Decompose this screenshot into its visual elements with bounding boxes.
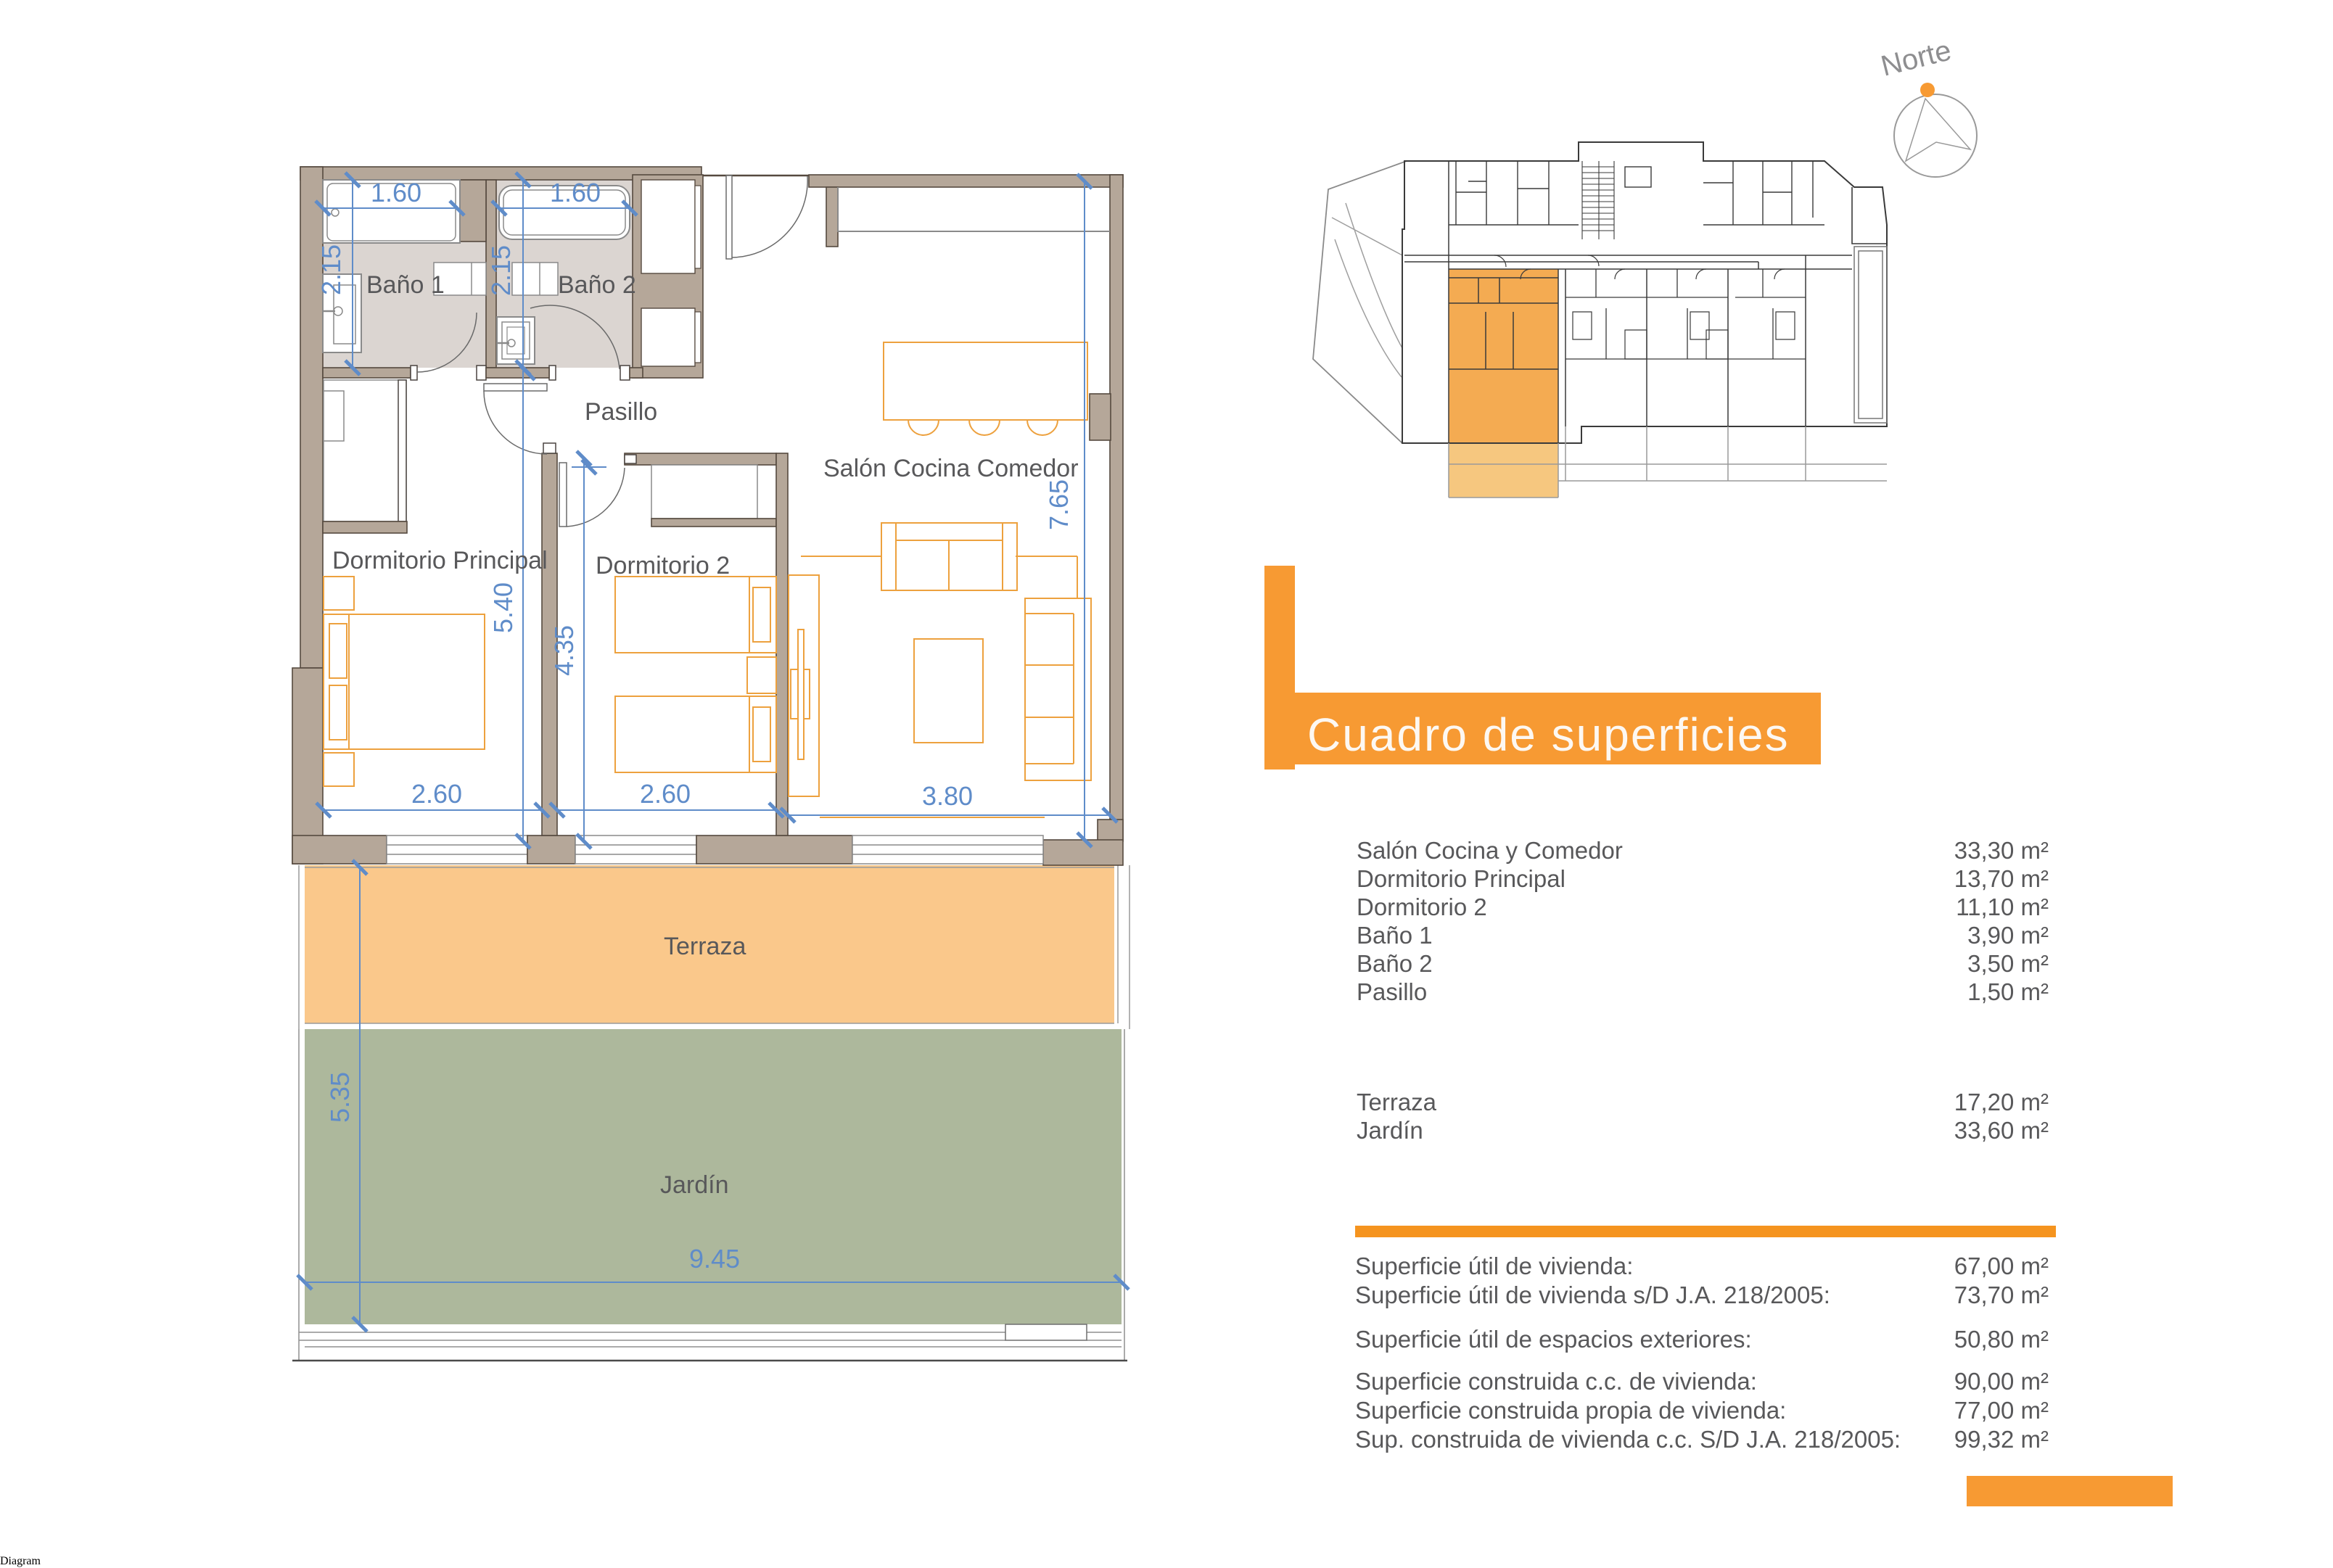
svg-text:Cuadro de superficies: Cuadro de superficies [1307,709,1790,761]
svg-text:Superficie útil de espacios ex: Superficie útil de espacios exteriores: [1355,1326,1752,1353]
svg-text:Dormitorio Principal: Dormitorio Principal [332,547,548,574]
svg-text:90,00 m²: 90,00 m² [1954,1368,2049,1395]
svg-text:Sup. construida de vivienda c.: Sup. construida de vivienda c.c. S/D J.A… [1355,1426,1901,1453]
svg-text:Superficie construida propia d: Superficie construida propia de vivienda… [1355,1397,1786,1424]
svg-text:7.65: 7.65 [1044,479,1074,530]
svg-text:Superficie útil de vivienda s/: Superficie útil de vivienda s/D J.A. 218… [1355,1282,1830,1308]
svg-text:Dormitorio 2: Dormitorio 2 [1357,894,1487,920]
svg-text:2.15: 2.15 [316,244,346,295]
svg-text:5.35: 5.35 [325,1072,355,1123]
svg-text:Dormitorio Principal: Dormitorio Principal [1357,865,1565,892]
svg-text:2.60: 2.60 [640,779,691,809]
svg-text:33,30 m²: 33,30 m² [1954,837,2049,864]
svg-text:Baño 2: Baño 2 [1357,950,1433,977]
svg-text:Salón Cocina y Comedor: Salón Cocina y Comedor [1357,837,1623,864]
svg-text:3.80: 3.80 [922,781,973,811]
svg-text:33,60 m²: 33,60 m² [1954,1117,2049,1144]
svg-text:4.35: 4.35 [549,625,579,676]
svg-text:Baño 1: Baño 1 [366,271,445,299]
svg-text:17,20 m²: 17,20 m² [1954,1089,2049,1115]
svg-text:11,10 m²: 11,10 m² [1956,894,2049,920]
svg-text:13,70 m²: 13,70 m² [1954,865,2049,892]
svg-text:9.45: 9.45 [689,1244,740,1274]
svg-text:67,00 m²: 67,00 m² [1954,1253,2049,1279]
svg-text:1.60: 1.60 [550,178,601,207]
svg-text:2.15: 2.15 [486,245,516,296]
svg-text:Pasillo: Pasillo [585,398,657,426]
svg-text:77,00 m²: 77,00 m² [1954,1397,2049,1424]
svg-text:1,50 m²: 1,50 m² [1967,978,2049,1005]
svg-text:2.60: 2.60 [411,779,462,809]
svg-text:Jardín: Jardín [660,1171,729,1199]
svg-text:Superficie útil de vivienda:: Superficie útil de vivienda: [1355,1253,1633,1279]
svg-text:3,90 m²: 3,90 m² [1967,922,2049,949]
svg-text:Salón Cocina Comedor: Salón Cocina Comedor [823,455,1079,482]
svg-text:99,32 m²: 99,32 m² [1954,1426,2049,1453]
svg-text:Jardín: Jardín [1357,1117,1423,1144]
svg-text:Baño 2: Baño 2 [558,271,636,299]
svg-text:3,50 m²: 3,50 m² [1967,950,2049,977]
svg-text:Superficie construida c.c. de: Superficie construida c.c. de vivienda: [1355,1368,1757,1395]
svg-text:1.60: 1.60 [371,178,421,207]
svg-text:Terraza: Terraza [664,933,746,960]
svg-text:50,80 m²: 50,80 m² [1954,1326,2049,1353]
svg-text:Pasillo: Pasillo [1357,978,1427,1005]
svg-text:Baño 1: Baño 1 [1357,922,1433,949]
svg-text:Terraza: Terraza [1357,1089,1437,1115]
svg-text:Dormitorio 2: Dormitorio 2 [596,552,730,579]
svg-text:73,70 m²: 73,70 m² [1954,1282,2049,1308]
svg-text:5.40: 5.40 [488,582,518,633]
